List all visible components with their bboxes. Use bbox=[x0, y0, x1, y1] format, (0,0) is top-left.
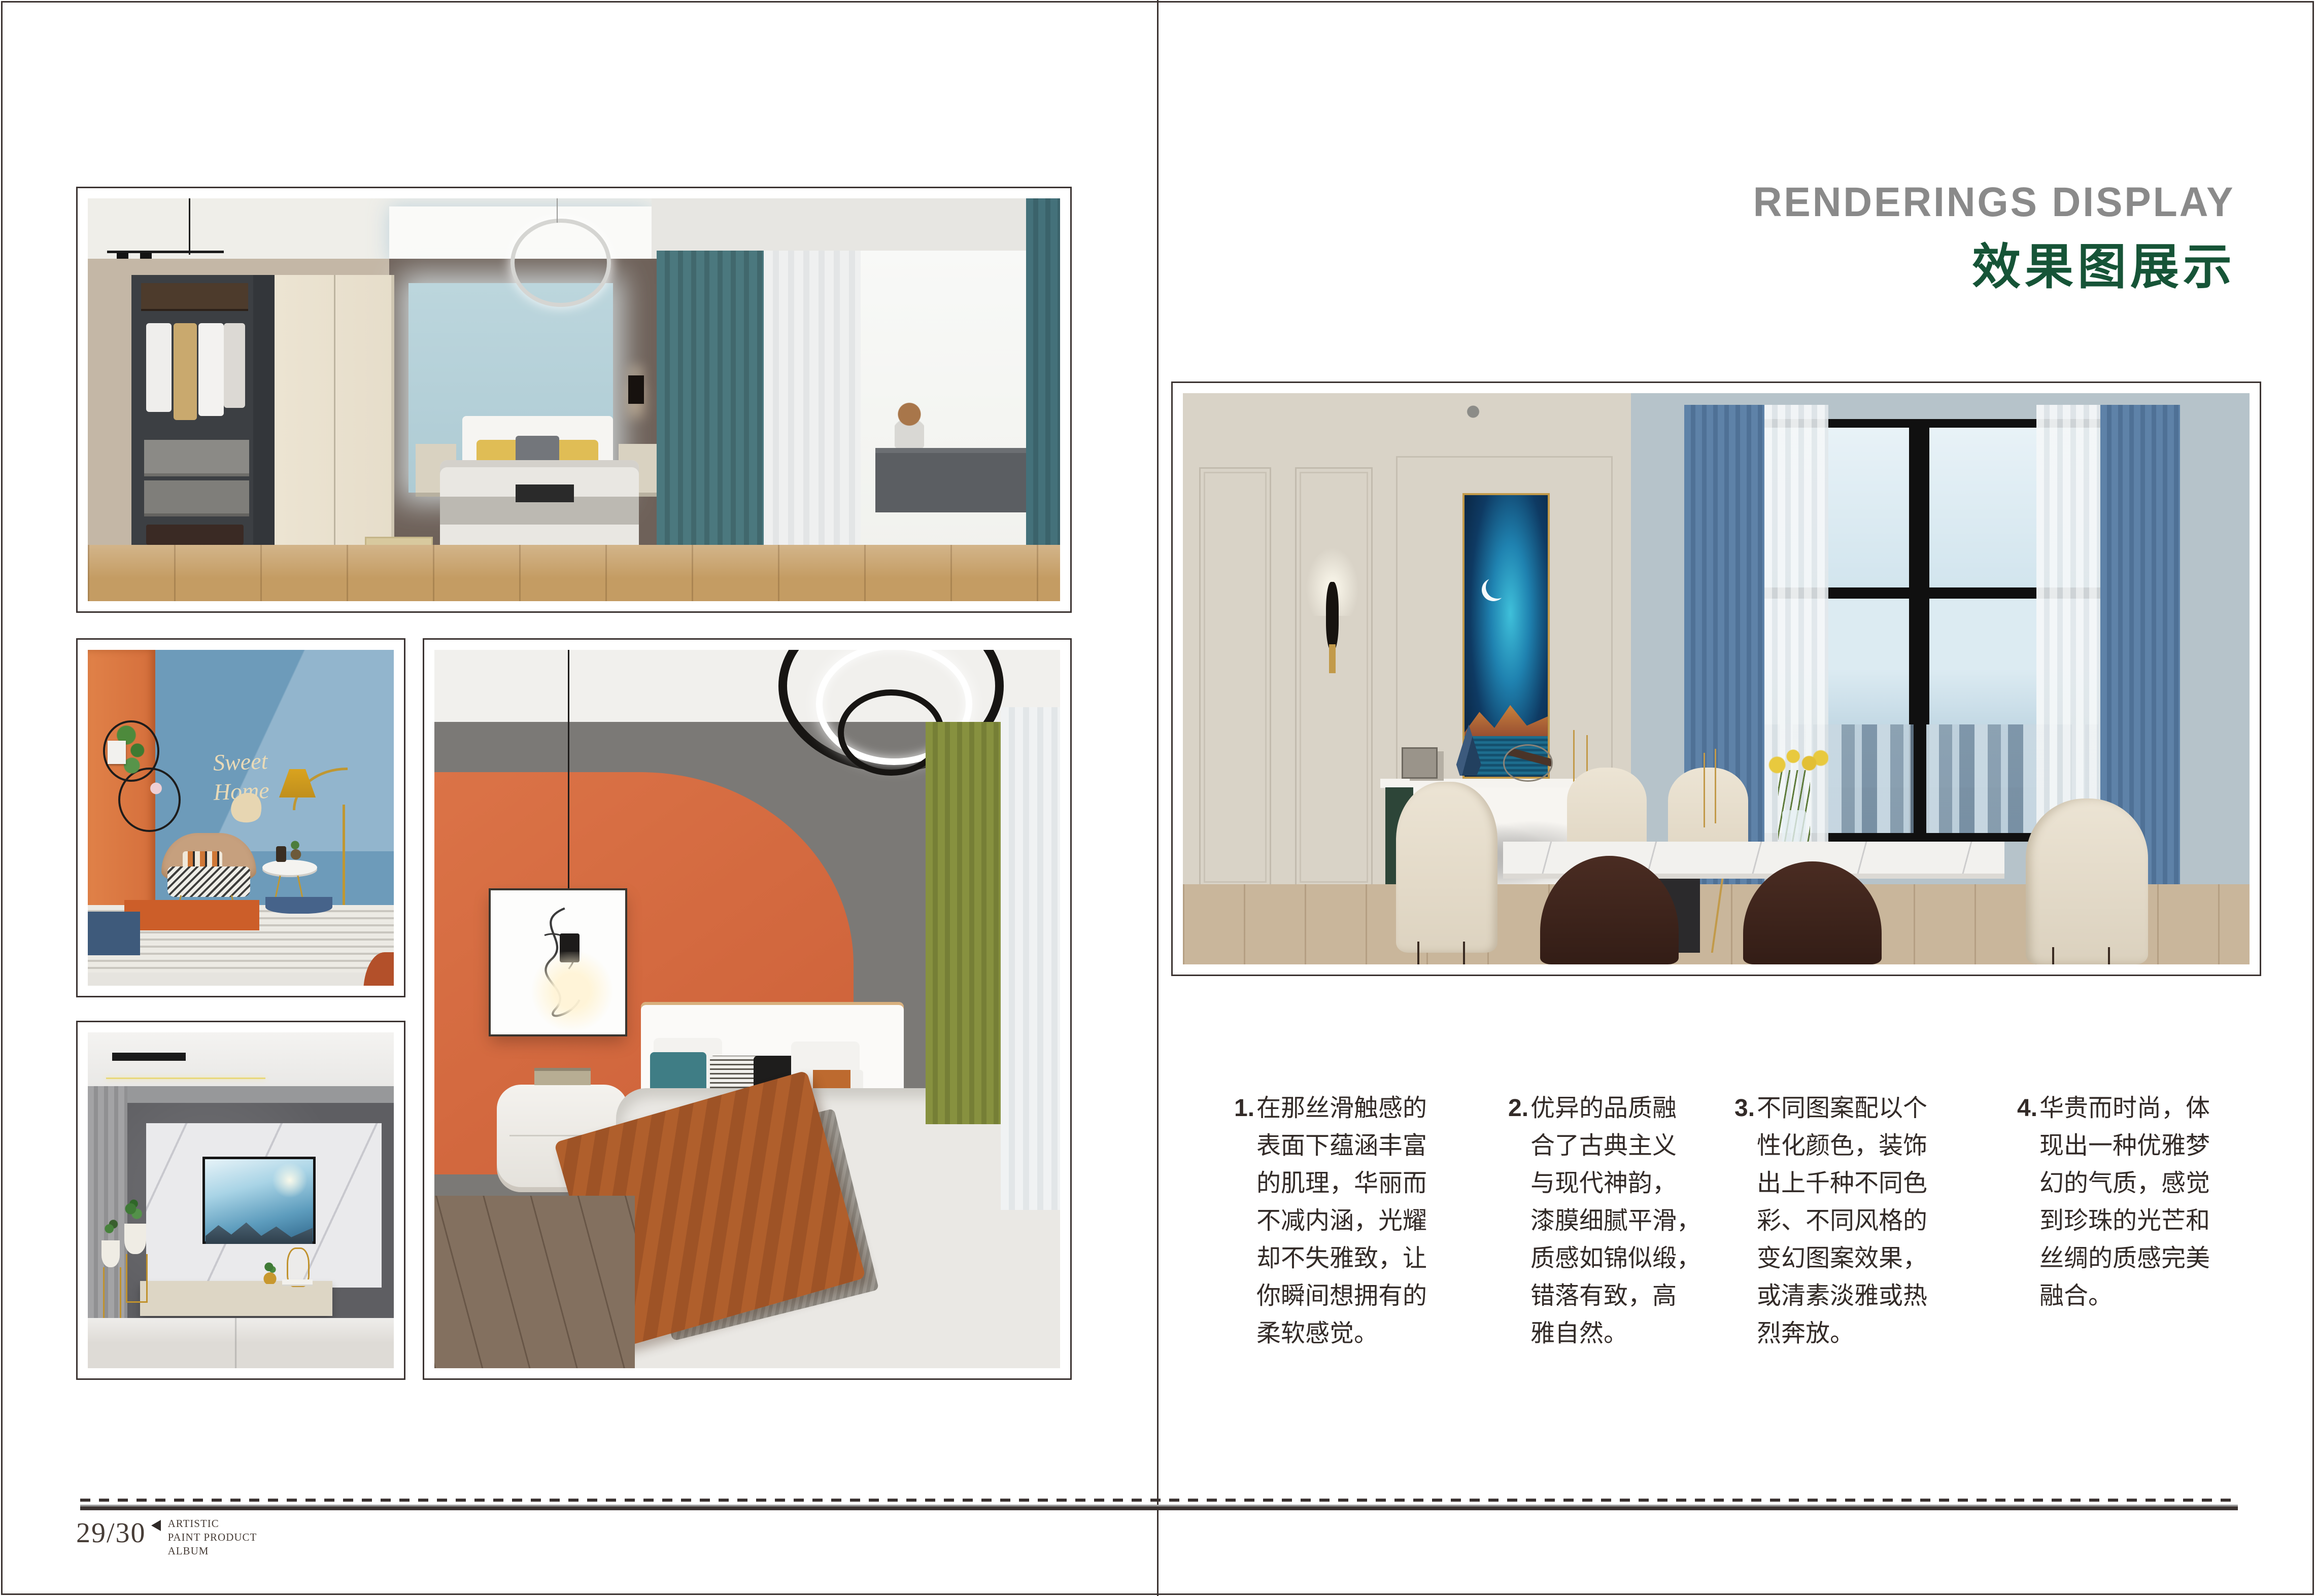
page-title-zh: 效果图展示 bbox=[1972, 227, 2236, 298]
feature-number: 3. bbox=[1734, 1090, 1757, 1352]
album-line: PAINT PRODUCT bbox=[168, 1531, 257, 1544]
photo-frame-tv-wall bbox=[76, 1021, 405, 1380]
candles-gold bbox=[1704, 753, 1705, 827]
photo-frame-sweet-home: Sweet Home bbox=[76, 638, 405, 997]
wardrobe-column bbox=[253, 275, 275, 557]
planter-photo-card bbox=[108, 741, 126, 764]
album-caption: ARTISTIC PAINT PRODUCT ALBUM bbox=[168, 1517, 257, 1558]
pendant-cord bbox=[557, 198, 558, 223]
tv-sun-glow bbox=[271, 1160, 308, 1200]
floor-lamp-pole bbox=[343, 805, 345, 915]
feature-paragraph-3: 3. 不同图案配以个 性化颜色，装饰 出上千种不同色 彩、不同风格的 变幻图案效… bbox=[1734, 1090, 1948, 1352]
photo-bedroom-wardrobe bbox=[88, 198, 1060, 601]
wall-panel-molding bbox=[1199, 467, 1272, 887]
feature-paragraph-4: 4. 华贵而时尚，体 现出一种优雅梦 幻的气质，感觉 到珍珠的光芒和 丝绸的质感… bbox=[2017, 1090, 2238, 1315]
hanging-clothes bbox=[146, 323, 172, 412]
wall-sconce bbox=[628, 375, 644, 404]
ceiling-right bbox=[652, 198, 1060, 259]
planter-flower bbox=[149, 781, 163, 796]
wardrobe-shelf-boxes bbox=[141, 283, 248, 311]
ceiling-spot bbox=[1460, 405, 1486, 419]
wood-floor bbox=[88, 545, 1060, 601]
wardrobe-baskets bbox=[144, 440, 249, 476]
wall-text-line1: Sweet bbox=[176, 745, 305, 779]
rug-navy-patch bbox=[88, 912, 140, 955]
chair-cream-left bbox=[1396, 782, 1497, 953]
photo-sweet-home-corner: Sweet Home bbox=[88, 650, 394, 986]
bench-books bbox=[282, 1279, 313, 1285]
feature-paragraph-1: 1. 在那丝滑触感的 表面下蕴涵丰富 的肌理，华丽而 不减内涵，光耀 却不失雅致… bbox=[1234, 1090, 1455, 1352]
hanging-clothes bbox=[224, 323, 245, 408]
side-table-top bbox=[262, 860, 318, 875]
feature-number: 2. bbox=[1508, 1090, 1530, 1352]
chair-right-legs bbox=[2052, 947, 2054, 964]
hanging-clothes bbox=[174, 323, 197, 420]
feature-text: 不同图案配以个 性化颜色，装饰 出上千种不同色 彩、不同风格的 变幻图案效果， … bbox=[1757, 1090, 1927, 1352]
rug-orange-patch bbox=[124, 900, 259, 930]
photo-frame-bedroom-wardrobe bbox=[76, 187, 1072, 613]
plant-stand-small-legs bbox=[103, 1267, 121, 1323]
album-line: ARTISTIC bbox=[168, 1517, 257, 1531]
pendant-lamp-glow bbox=[528, 952, 616, 1031]
chair-cream-right bbox=[2026, 799, 2149, 964]
tulip-heads bbox=[1764, 744, 1828, 779]
nightstand-books bbox=[534, 1071, 591, 1085]
curtain-sheer bbox=[1001, 707, 1060, 1210]
window-plant bbox=[895, 400, 924, 448]
footer-dashed-rule bbox=[80, 1499, 2238, 1502]
window-mullion-v bbox=[1914, 419, 1926, 842]
bench-plant bbox=[259, 1258, 281, 1285]
feature-text: 优异的品质融 合了古典主义 与现代神韵， 漆膜细腻平滑， 质感如锦似缎， 错落有… bbox=[1530, 1090, 1701, 1352]
feature-paragraph-2: 2. 优异的品质融 合了古典主义 与现代神韵， 漆膜细腻平滑， 质感如锦似缎， … bbox=[1508, 1090, 1706, 1352]
wardrobe-door-seam bbox=[334, 275, 335, 557]
pendant-rod bbox=[189, 198, 190, 255]
wall-panel-molding bbox=[1295, 467, 1373, 887]
curtain-green bbox=[926, 722, 1001, 1124]
side-table-decor bbox=[276, 846, 287, 861]
plant-pot bbox=[124, 1224, 146, 1254]
catalog-spread-page: Sweet Home bbox=[0, 0, 2315, 1596]
rug-navy-patch-right bbox=[265, 897, 333, 914]
footer-solid-rule bbox=[80, 1505, 2238, 1510]
ring-pendant-lamp bbox=[510, 219, 611, 307]
ceiling-light-line bbox=[106, 1078, 265, 1079]
left-triangle-icon bbox=[151, 1520, 161, 1531]
photo-frame-bedroom-orange bbox=[423, 638, 1072, 1380]
feature-number: 1. bbox=[1234, 1090, 1256, 1352]
photo-bedroom-orange bbox=[434, 650, 1060, 1368]
photo-frame-dining-room bbox=[1171, 381, 2261, 976]
wardrobe-baskets bbox=[144, 480, 249, 516]
center-divider bbox=[1157, 0, 1159, 1596]
wardrobe-shoes bbox=[146, 525, 244, 545]
curtain-sheer bbox=[764, 251, 861, 553]
armchair-cushion bbox=[167, 866, 250, 897]
decor-photo-frames bbox=[1402, 747, 1438, 779]
plant-stand-legs bbox=[126, 1254, 147, 1303]
page-title-en: RENDERINGS DISPLAY bbox=[1753, 179, 2235, 226]
marble-floor bbox=[88, 1318, 394, 1368]
album-line: ALBUM bbox=[168, 1544, 257, 1558]
ceiling-track bbox=[112, 1053, 186, 1061]
plant-stand-small bbox=[97, 1213, 124, 1244]
sconce-arm-gold bbox=[1329, 644, 1336, 673]
feature-number: 4. bbox=[2017, 1090, 2039, 1315]
photo-tv-wall bbox=[88, 1032, 394, 1368]
wood-floor-dark bbox=[434, 1196, 635, 1368]
decor-wine-rack bbox=[1503, 744, 1553, 782]
photo-dining-room bbox=[1183, 393, 2250, 964]
curtain-teal bbox=[657, 251, 764, 553]
hanging-clothes bbox=[198, 323, 224, 416]
page-number: 29/30 bbox=[76, 1517, 146, 1549]
feature-text: 华贵而时尚，体 现出一种优雅梦 幻的气质，感觉 到珍珠的光芒和 丝绸的质感完美 … bbox=[2039, 1090, 2210, 1315]
decor-candlesticks bbox=[1573, 730, 1575, 781]
feature-text: 在那丝滑触感的 表面下蕴涵丰富 的肌理，华丽而 不减内涵，光耀 却不失雅致，让 … bbox=[1256, 1090, 1427, 1352]
curtain-teal-right bbox=[1026, 198, 1060, 601]
side-table-plant bbox=[288, 838, 303, 861]
plant-pot-small bbox=[101, 1240, 120, 1267]
wall-sconce bbox=[1326, 582, 1339, 650]
bed-tray bbox=[516, 484, 574, 503]
footer-info: 29/30 ARTISTIC PAINT PRODUCT ALBUM bbox=[76, 1517, 257, 1558]
chair-leg bbox=[1417, 942, 1419, 964]
